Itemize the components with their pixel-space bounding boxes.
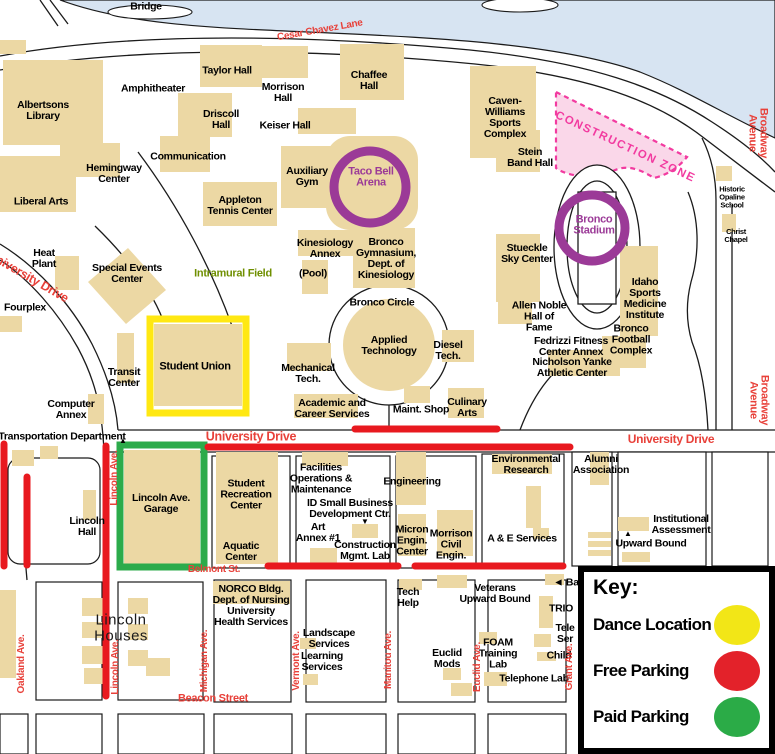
key-title: Key: (593, 576, 760, 600)
river-island (108, 5, 192, 19)
key-label-paid-parking: Paid Parking (593, 707, 689, 727)
paid-parking-swatch (714, 697, 760, 737)
key-row-dance-location: Dance Location (593, 602, 760, 648)
river-island (482, 0, 558, 12)
dance-location-swatch (714, 605, 760, 645)
key-label-free-parking: Free Parking (593, 661, 689, 681)
key-row-free-parking: Free Parking (593, 648, 760, 694)
key-row-paid-parking: Paid Parking (593, 694, 760, 740)
free-parking-swatch (714, 651, 760, 691)
construction-zone (556, 92, 687, 178)
map-key: Key: Dance Location Free Parking Paid Pa… (578, 566, 775, 754)
key-label-dance-location: Dance Location (593, 615, 711, 635)
campus-map: BridgeAlbertsons LibraryAmphitheaterTayl… (0, 0, 775, 754)
river (60, 0, 775, 138)
